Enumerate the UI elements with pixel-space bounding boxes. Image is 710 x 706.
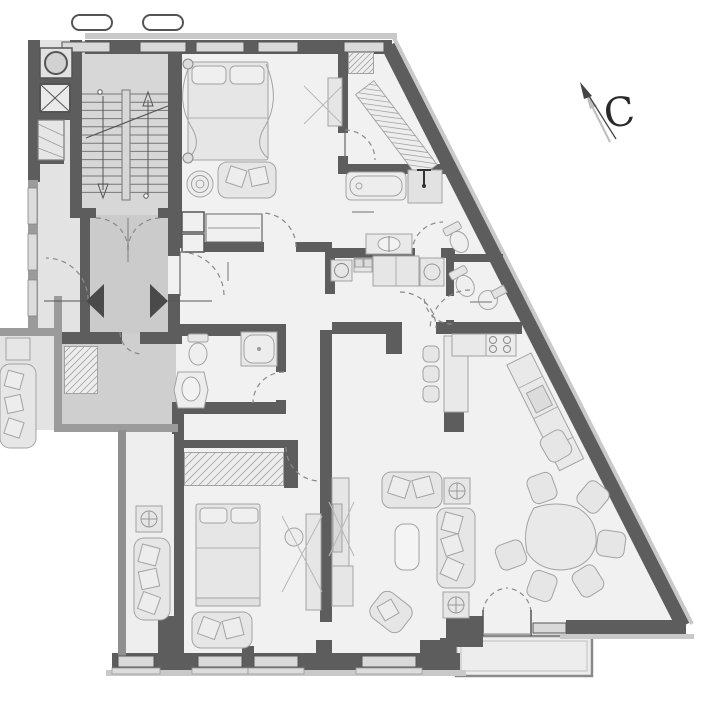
- low-cabinet: [332, 566, 353, 606]
- wall-service-2: [36, 112, 70, 120]
- dining-chair-4: [595, 529, 626, 559]
- neighbor-room-sofa-c2: [138, 568, 159, 589]
- window-bottom-4: [362, 656, 416, 667]
- wall-neighbor-bottom: [0, 328, 60, 336]
- bath2-sink-bowl: [182, 377, 200, 401]
- dining-table: [526, 504, 597, 570]
- laundry-sink-1: [355, 259, 363, 267]
- wall-stairhall-right: [168, 40, 182, 218]
- bath2-toilet-tank: [188, 334, 208, 342]
- wall-step-2: [440, 647, 456, 661]
- window-sill-1: [112, 668, 160, 674]
- window-top-2: [140, 42, 186, 52]
- entry-niche-1: [182, 212, 204, 232]
- bed1-post-bot: [183, 153, 193, 163]
- window-left-1: [28, 188, 37, 224]
- sofa-a-cushion-2: [412, 476, 434, 498]
- window-sill-4: [356, 668, 422, 674]
- bath2-shower-drain: [257, 347, 261, 351]
- neighbor-room-sofa-c1: [138, 544, 160, 566]
- compass-needle-head: [580, 82, 592, 99]
- bed2-chair: [285, 528, 303, 546]
- wall-neighbor-hall-left: [54, 296, 62, 432]
- sofa1-cushion-2: [249, 166, 269, 186]
- roof-vent-1: [72, 15, 112, 30]
- bed1-pillow-r: [230, 66, 264, 84]
- wall-pillar-door: [446, 616, 483, 638]
- window-bottom-1: [118, 656, 154, 667]
- roof-vent-2: [143, 15, 183, 30]
- window-living-south: [533, 623, 566, 633]
- wall-kitchen-north: [452, 322, 522, 334]
- kitchen-counter-top: [452, 334, 486, 356]
- window-top-4: [258, 42, 298, 52]
- bed2-foot: [196, 598, 260, 606]
- window-left-3: [28, 280, 37, 316]
- bed1-pillow-l: [192, 66, 226, 84]
- window-left-2: [28, 234, 37, 270]
- wall-neighbor-hall-south: [54, 424, 178, 432]
- stair-stringer: [122, 90, 130, 200]
- stair-post-top: [98, 90, 102, 94]
- bed2-dresser: [306, 514, 321, 610]
- bed1-mirror-wardrobe: [328, 78, 342, 126]
- wall-wc-north: [453, 254, 503, 262]
- neighbor-plant-table-left: [6, 338, 30, 360]
- bed1-post-top: [183, 59, 193, 69]
- stair-post-bottom: [144, 194, 148, 198]
- bed2-pillow-l: [200, 508, 227, 523]
- floorplan-svg: C: [0, 0, 710, 706]
- window-bottom-2: [198, 656, 242, 667]
- sofa-b-cushion-1: [441, 512, 463, 534]
- garbage-chute: [45, 52, 67, 74]
- wall-living-west: [320, 330, 332, 622]
- wall-neighbor-room-west: [118, 430, 126, 658]
- window-top-5: [344, 42, 384, 52]
- compass-letter: C: [601, 88, 638, 138]
- window-top-3: [196, 42, 244, 52]
- window-bottom-3: [254, 656, 298, 667]
- wall-step-1: [440, 638, 483, 647]
- floorplan-canvas: C C: [0, 0, 710, 706]
- wall-corridor-bottom-l: [60, 332, 122, 344]
- window-sill-3: [248, 668, 304, 674]
- bath2-toilet-bowl: [189, 343, 207, 365]
- bar-stool-1: [423, 346, 439, 362]
- entry-niche-2: [182, 234, 204, 252]
- bench2-cushion-2: [222, 617, 244, 639]
- wall-pillar-kitchen: [444, 412, 464, 432]
- wall-bed2-west: [174, 430, 184, 656]
- trim-top: [85, 33, 397, 39]
- wall-pier-2: [316, 640, 332, 654]
- bath1-faucet-dot: [422, 184, 426, 188]
- wall-step-hall: [386, 334, 402, 354]
- wall-living-north-1: [332, 322, 402, 334]
- wall-bed1-west: [172, 216, 182, 248]
- wall-entry-jamb-l: [80, 208, 96, 218]
- trim-bottom-right: [560, 634, 694, 639]
- neighbor-sofa-left-c1: [4, 370, 24, 390]
- bed2-pillow-r: [231, 508, 258, 523]
- rug1-outer: [187, 171, 213, 197]
- wall-bottom-right: [566, 620, 686, 634]
- wall-corridor-left: [80, 212, 90, 344]
- bar-stool-2: [423, 366, 439, 382]
- bar-stool-3: [423, 386, 439, 402]
- wall-closet-north: [178, 440, 288, 448]
- neighbor-sofa-left-c2: [5, 395, 24, 414]
- laundry-sink-2: [364, 259, 372, 267]
- coffee-table: [395, 524, 419, 570]
- window-sill-2: [192, 668, 248, 674]
